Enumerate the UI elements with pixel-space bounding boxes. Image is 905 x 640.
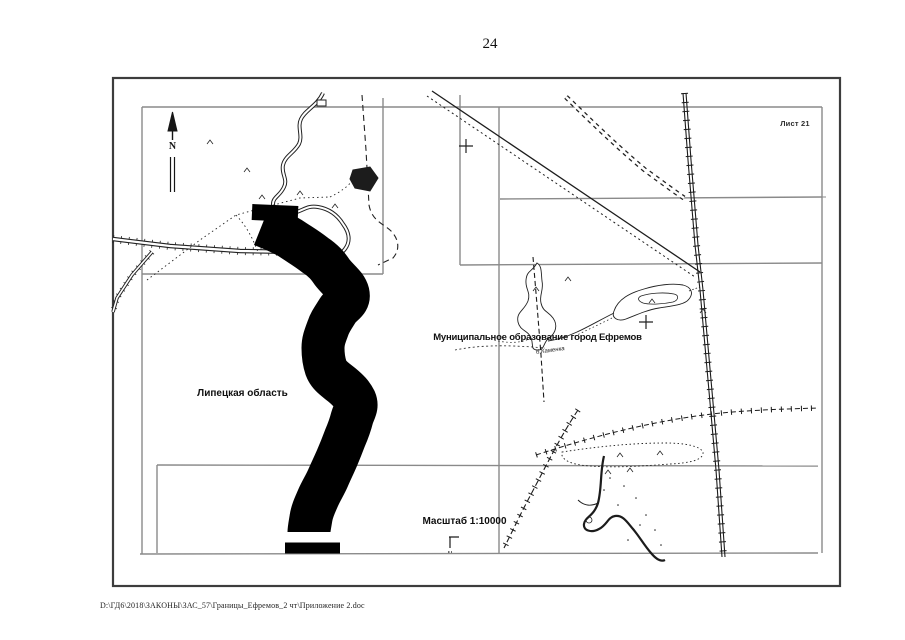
boundary-dashed-topcenter (350, 95, 398, 265)
river-bottomright (562, 443, 703, 561)
document-file-path: D:\ГД6\2018\ЗАКОНЫ\ЗАС_57\Границы_Ефремо… (100, 601, 365, 610)
corner-mark (448, 537, 459, 552)
map-sheet-label: Лист 21 (770, 119, 820, 128)
boundary-band (252, 212, 356, 548)
municipality-label: Муниципальное образование город Ефремов (420, 332, 655, 343)
railway-diagonal (427, 91, 700, 277)
page-number: 24 (460, 36, 520, 53)
road-dashed-curve (566, 97, 684, 198)
north-arrow-letter: N (163, 141, 182, 152)
scale-label: Масштаб 1:10000 (412, 516, 517, 527)
pond-right (613, 284, 691, 320)
map-sheet-frames (140, 95, 826, 554)
railway-vertical (683, 93, 725, 557)
region-label: Липецкая область (185, 388, 300, 399)
map-graphics (0, 0, 905, 640)
north-arrow-icon (168, 112, 177, 192)
